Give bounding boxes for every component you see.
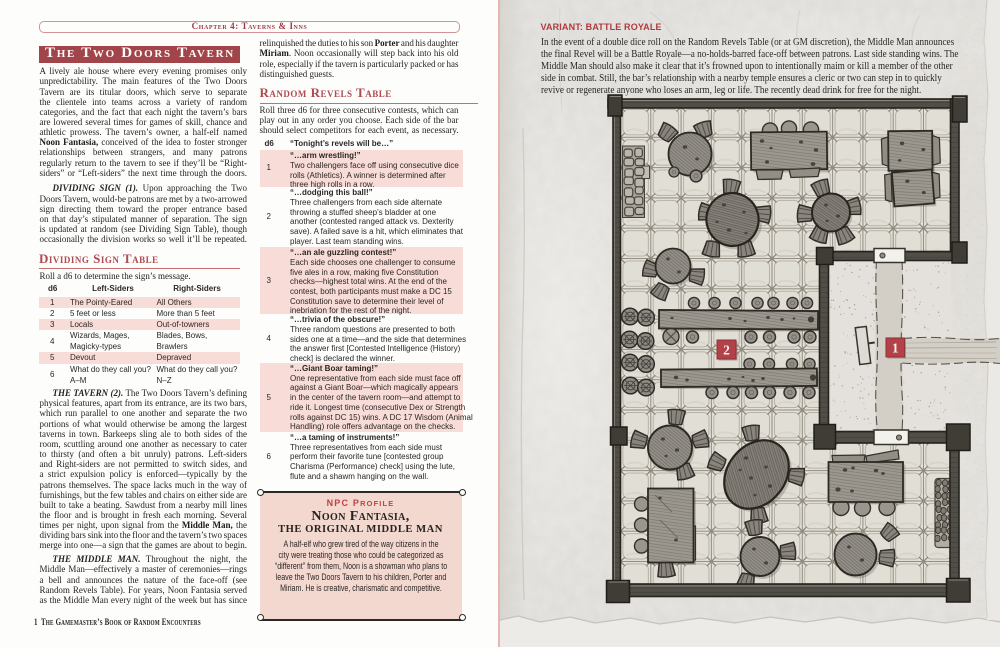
svg-text:1: 1 xyxy=(892,341,899,356)
svg-text:2: 2 xyxy=(723,343,730,358)
